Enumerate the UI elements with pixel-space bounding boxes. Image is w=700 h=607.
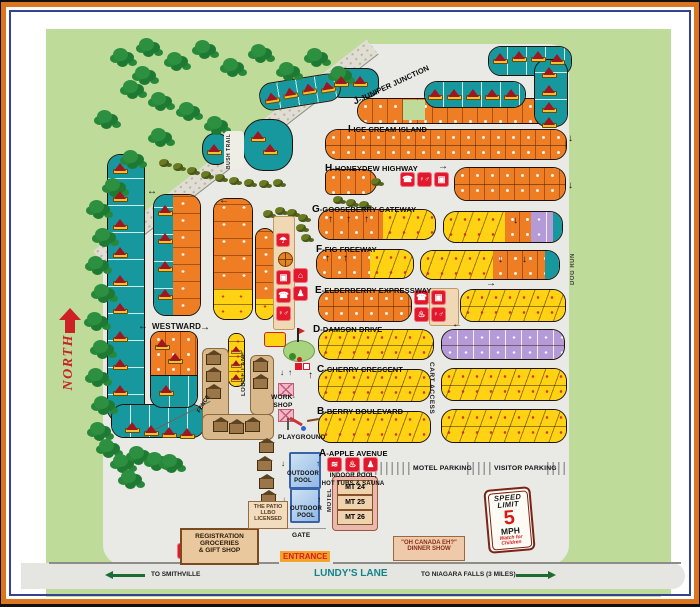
laundry-icon: ▣ [434, 172, 449, 187]
tree-icon [121, 470, 136, 483]
hot-tub-icon: ♨ [414, 307, 429, 322]
sites-segment [553, 212, 562, 242]
bush-icon [159, 159, 169, 167]
garden-icon [297, 357, 302, 362]
cabin-icon [229, 423, 244, 434]
sites-segment [531, 212, 552, 242]
tree-icon [97, 110, 112, 123]
tent-icon [144, 424, 158, 436]
two-way-arrow-icon: ↔ [147, 187, 157, 197]
bush-icon [259, 180, 269, 188]
work-shop-label: WORK- SHOP [267, 394, 299, 410]
dog-run-label: DOG RUN [570, 245, 576, 285]
left-arrow-icon [113, 574, 145, 577]
gooseberry-east-sites [443, 211, 563, 243]
row-divider [455, 184, 565, 185]
tree-icon [113, 48, 128, 61]
bush-icon [263, 210, 273, 218]
left-arrow-icon: ← [452, 320, 462, 330]
tent-icon [428, 88, 442, 100]
tree-icon [207, 116, 222, 129]
map-paper: ☎ ♀♂ ▣ ☎ ▣ ♨ ♀♂ ☂ ▣ ⌂ ☎ ♟ ♀♂ ≋ ♨ ♟ ☎ MT … [1, 2, 699, 604]
tree-icon [307, 48, 322, 61]
central-strip-3 [255, 228, 275, 320]
row-divider [319, 306, 411, 307]
bush-icon [229, 177, 239, 185]
street-label-apple: A-APPLE AVENUE [319, 443, 388, 461]
street-label-berry: B-BERRY BOULEVARD [317, 401, 403, 419]
tree-icon [139, 38, 154, 51]
north-label: NORTH [61, 334, 77, 391]
road-edge-line [333, 562, 681, 564]
indoor-pool-label: INDOOR POOL, HOT TUBS & SAUNA [318, 473, 388, 488]
tent-icon [113, 190, 127, 202]
tent-icon [512, 50, 526, 62]
games-room-icon: ⌂ [293, 268, 308, 283]
gate-label: GATE [292, 532, 310, 539]
up-arrow-icon: ↑ [288, 369, 292, 377]
street-name: -FIG FREEWAY [322, 245, 377, 254]
cabin-icon [259, 478, 274, 489]
motel-unit-mt25: MT 25 [337, 495, 373, 510]
westward-label: WESTWARD [152, 322, 201, 331]
speed-warning: Watch for Children [499, 535, 523, 547]
tree-icon [129, 446, 144, 459]
tree-icon [147, 452, 162, 465]
right-arrow-icon [516, 574, 548, 577]
tree-icon [151, 128, 166, 141]
tree-icon [123, 80, 138, 93]
bush-icon [215, 174, 225, 182]
ball-icon [301, 426, 306, 431]
visitor-parking-label: VISITOR PARKING [494, 465, 557, 472]
tree-icon [89, 200, 104, 213]
tree-icon [90, 422, 105, 435]
motel-parking-label: MOTEL PARKING [413, 465, 472, 472]
cabin-icon [245, 421, 260, 432]
tree-icon [99, 439, 114, 452]
tent-icon [485, 88, 499, 100]
tent-icon [125, 421, 139, 433]
cart-access-label: CART ACCESS [428, 362, 435, 418]
tent-icon [231, 359, 241, 368]
entrance-sign: ENTRANCE [280, 551, 330, 562]
tree-icon [151, 92, 166, 105]
tent-icon [531, 50, 545, 62]
restroom-icon: ♀♂ [417, 172, 432, 187]
sites-segment [444, 212, 505, 242]
sites-segment [256, 229, 274, 299]
tent-icon [231, 345, 241, 354]
golf-flag-icon [299, 328, 305, 334]
info-sign-icon [295, 363, 302, 370]
tent-icon [158, 232, 172, 244]
down-arrow-icon: ↓ [280, 369, 284, 377]
grass-strip-bottom [46, 589, 661, 597]
down-arrow-icon: ↓ [522, 255, 527, 265]
tent-icon [542, 84, 556, 96]
cabin-icon [259, 442, 274, 453]
row-divider [326, 145, 566, 146]
sites-segment [151, 376, 197, 407]
arrow-head [59, 308, 81, 320]
bush-icon [187, 167, 197, 175]
tent-icon [162, 426, 176, 438]
elderberry-east-sites [460, 289, 566, 322]
tree-icon [113, 454, 128, 467]
cabin-icon [253, 361, 268, 372]
tent-icon [542, 101, 556, 113]
row-divider [442, 385, 566, 386]
logo-sign [264, 332, 286, 347]
tree-icon [94, 396, 109, 409]
tree-icon [135, 66, 150, 79]
tent-icon [113, 274, 127, 286]
tree-icon [279, 62, 294, 75]
tree-icon [251, 44, 266, 57]
tent-icon [264, 91, 280, 105]
tree-icon [87, 312, 102, 325]
bush-icon [273, 179, 283, 187]
central-strip-2 [213, 198, 253, 320]
tent-icon [113, 162, 127, 174]
garden-icon [289, 353, 296, 360]
tent-icon [251, 130, 265, 142]
bush-icon [298, 214, 308, 222]
westward-teal-block [150, 375, 198, 408]
tent-icon [158, 260, 172, 272]
tent-icon [113, 246, 127, 258]
tent-icon [113, 218, 127, 230]
tent-icon [159, 384, 173, 396]
left-arrow-icon: ← [219, 196, 229, 206]
tent-icon [542, 116, 556, 128]
tent-icon [207, 143, 221, 155]
damson-east-sites [441, 329, 565, 360]
tent-icon [155, 338, 169, 350]
street-label-fig: F-FIG FREEWAY [316, 239, 377, 257]
tent-icon [231, 373, 241, 382]
street-name: -BERRY BOULEVARD [324, 407, 403, 416]
sports-court-icon [278, 252, 293, 267]
street-label-elderberry: E-ELDERBERRY EXPRESSWAY [315, 280, 432, 298]
left-arrow-icon: ← [138, 322, 148, 332]
cabin-icon [206, 354, 221, 365]
tent-icon [263, 143, 277, 155]
to-niagara-label: TO NIAGARA FALLS (3 MILES) [421, 571, 516, 578]
tree-icon [223, 58, 238, 71]
street-label-damson: D-DAMSON DRIVE [313, 319, 382, 337]
campground-map-page: ☎ ♀♂ ▣ ☎ ▣ ♨ ♀♂ ☂ ▣ ⌂ ☎ ♟ ♀♂ ≋ ♨ ♟ ☎ MT … [0, 0, 700, 607]
patio-building: THE PATIO LLBO LICENSED [248, 501, 288, 529]
laundry-icon: ▣ [431, 290, 446, 305]
cherry-east-sites [441, 368, 567, 401]
tree-icon [162, 454, 177, 467]
pole-icon [287, 418, 289, 430]
tent-icon [180, 427, 194, 439]
down-arrow-icon: ↓ [568, 134, 573, 144]
street-name: -DAMSON DRIVE [320, 325, 382, 334]
tree-icon [93, 340, 108, 353]
tent-icon [493, 52, 507, 64]
motel-label: MOTEL [327, 486, 333, 512]
row-divider [442, 345, 564, 346]
outdoor-pool-lower-label: OUTDOOR POOL [285, 506, 327, 520]
down-arrow-icon: ↓ [281, 460, 285, 468]
street-label-honeydew: H-HONEYDEW HIGHWAY [325, 158, 418, 176]
restroom-icon: ♀♂ [431, 307, 446, 322]
street-name: -HONEYDEW HIGHWAY [332, 164, 418, 173]
tree-icon [167, 52, 182, 65]
street-label-ice-cream: I-ICE CREAM ISLAND [348, 119, 427, 137]
tent-icon [158, 288, 172, 300]
sites-segment [256, 299, 274, 319]
tent-icon [542, 66, 556, 78]
phone-icon: ☎ [276, 288, 291, 303]
tent-icon [168, 352, 182, 364]
right-arrow-icon: → [486, 279, 496, 289]
tent-icon [113, 330, 127, 342]
info-sign-icon [303, 363, 310, 370]
tent-icon [158, 204, 172, 216]
street-name: -GOOSEBERRY GATEWAY [320, 205, 417, 214]
to-smithville-label: TO SMITHVILLE [151, 571, 200, 578]
fig-east-sites [420, 250, 560, 280]
down-arrow-icon: ↓ [498, 255, 503, 265]
tent-icon [550, 53, 564, 65]
bush-icon [301, 234, 311, 242]
speed-limit-sign: SPEED LIMIT 5 MPH Watch for Children [483, 486, 535, 554]
lundys-lane-label: LUNDY'S LANE [314, 568, 388, 579]
sites-segment [173, 195, 200, 315]
lodge-lane-label: LODGE LANE [241, 338, 247, 396]
bush-icon [201, 171, 211, 179]
tent-icon [466, 88, 480, 100]
person-icon: ♟ [293, 286, 308, 301]
tree-icon [95, 228, 110, 241]
bush-icon [296, 224, 306, 232]
bush-icon [371, 178, 381, 186]
pavilion-icon: ☂ [276, 233, 290, 247]
street-name: -ELDERBERRY EXPRESSWAY [322, 286, 432, 295]
bush-trail-label: BUSH TRAIL [226, 133, 243, 169]
down-arrow-icon: ↓ [568, 181, 573, 191]
street-name: -CHERRY CRESCENT [324, 365, 403, 374]
cabin-icon [257, 460, 272, 471]
cabin-icon [206, 371, 221, 382]
street-label-cherry: C-CHERRY CRESCENT [317, 359, 403, 377]
tree-icon [195, 40, 210, 53]
street-name: -ICE CREAM ISLAND [351, 125, 427, 134]
honeydew-east-sites [454, 167, 566, 201]
tent-icon [113, 384, 127, 396]
tree-icon [88, 368, 103, 381]
speed-limit-face: SPEED LIMIT 5 MPH Watch for Children [487, 490, 532, 550]
street-name: -APPLE AVENUE [326, 449, 387, 458]
berry-east-sites [441, 409, 567, 443]
cabin-icon [213, 421, 228, 432]
bush-icon [244, 179, 254, 187]
north-arrow-icon [59, 308, 81, 333]
sites-segment [214, 289, 252, 319]
tent-icon [282, 86, 298, 100]
row-divider [319, 386, 430, 387]
tree-icon [88, 256, 103, 269]
street-label-gooseberry: G-GOOSEBERRY GATEWAY [312, 199, 416, 217]
tent-icon [447, 88, 461, 100]
tent-icon [334, 75, 348, 87]
sites-segment [545, 251, 559, 279]
street-letter: G [312, 204, 320, 215]
dinner-show-building: "OH CANADA EH?" DINNER SHOW [393, 536, 465, 561]
row-divider [461, 306, 565, 307]
grass-patch [403, 100, 425, 120]
tent-icon [320, 80, 336, 94]
laundry-icon: ▣ [276, 270, 291, 285]
row-divider [442, 426, 566, 427]
tent-icon [113, 302, 127, 314]
cabin-icon [253, 378, 268, 389]
street-letter: E [315, 285, 322, 296]
up-arrow-icon: ↑ [316, 460, 320, 468]
tent-icon [301, 82, 317, 96]
playground-label: PLAYGROUND [278, 434, 326, 441]
up-arrow-icon: ↑ [317, 496, 321, 504]
tree-icon [94, 284, 109, 297]
sites-segment [214, 199, 252, 289]
right-arrow-icon: → [438, 162, 448, 172]
tent-icon [113, 358, 127, 370]
sites-segment [421, 251, 493, 279]
bush-icon [275, 207, 285, 215]
restroom-icon: ♀♂ [276, 306, 291, 321]
arrow-stem [65, 320, 75, 333]
down-arrow-icon: ↓ [513, 216, 518, 226]
tree-icon [179, 102, 194, 115]
bush-icon [173, 163, 183, 171]
right-arrow-icon: → [200, 323, 210, 333]
tent-icon [504, 88, 518, 100]
registration-building: REGISTRATION GROCERIES & GIFT SHOP [180, 528, 259, 565]
sites-segment [505, 212, 531, 242]
motel-unit-mt26: MT 26 [337, 510, 373, 525]
up-arrow-icon: ↑ [308, 371, 313, 381]
row-divider [319, 345, 433, 346]
